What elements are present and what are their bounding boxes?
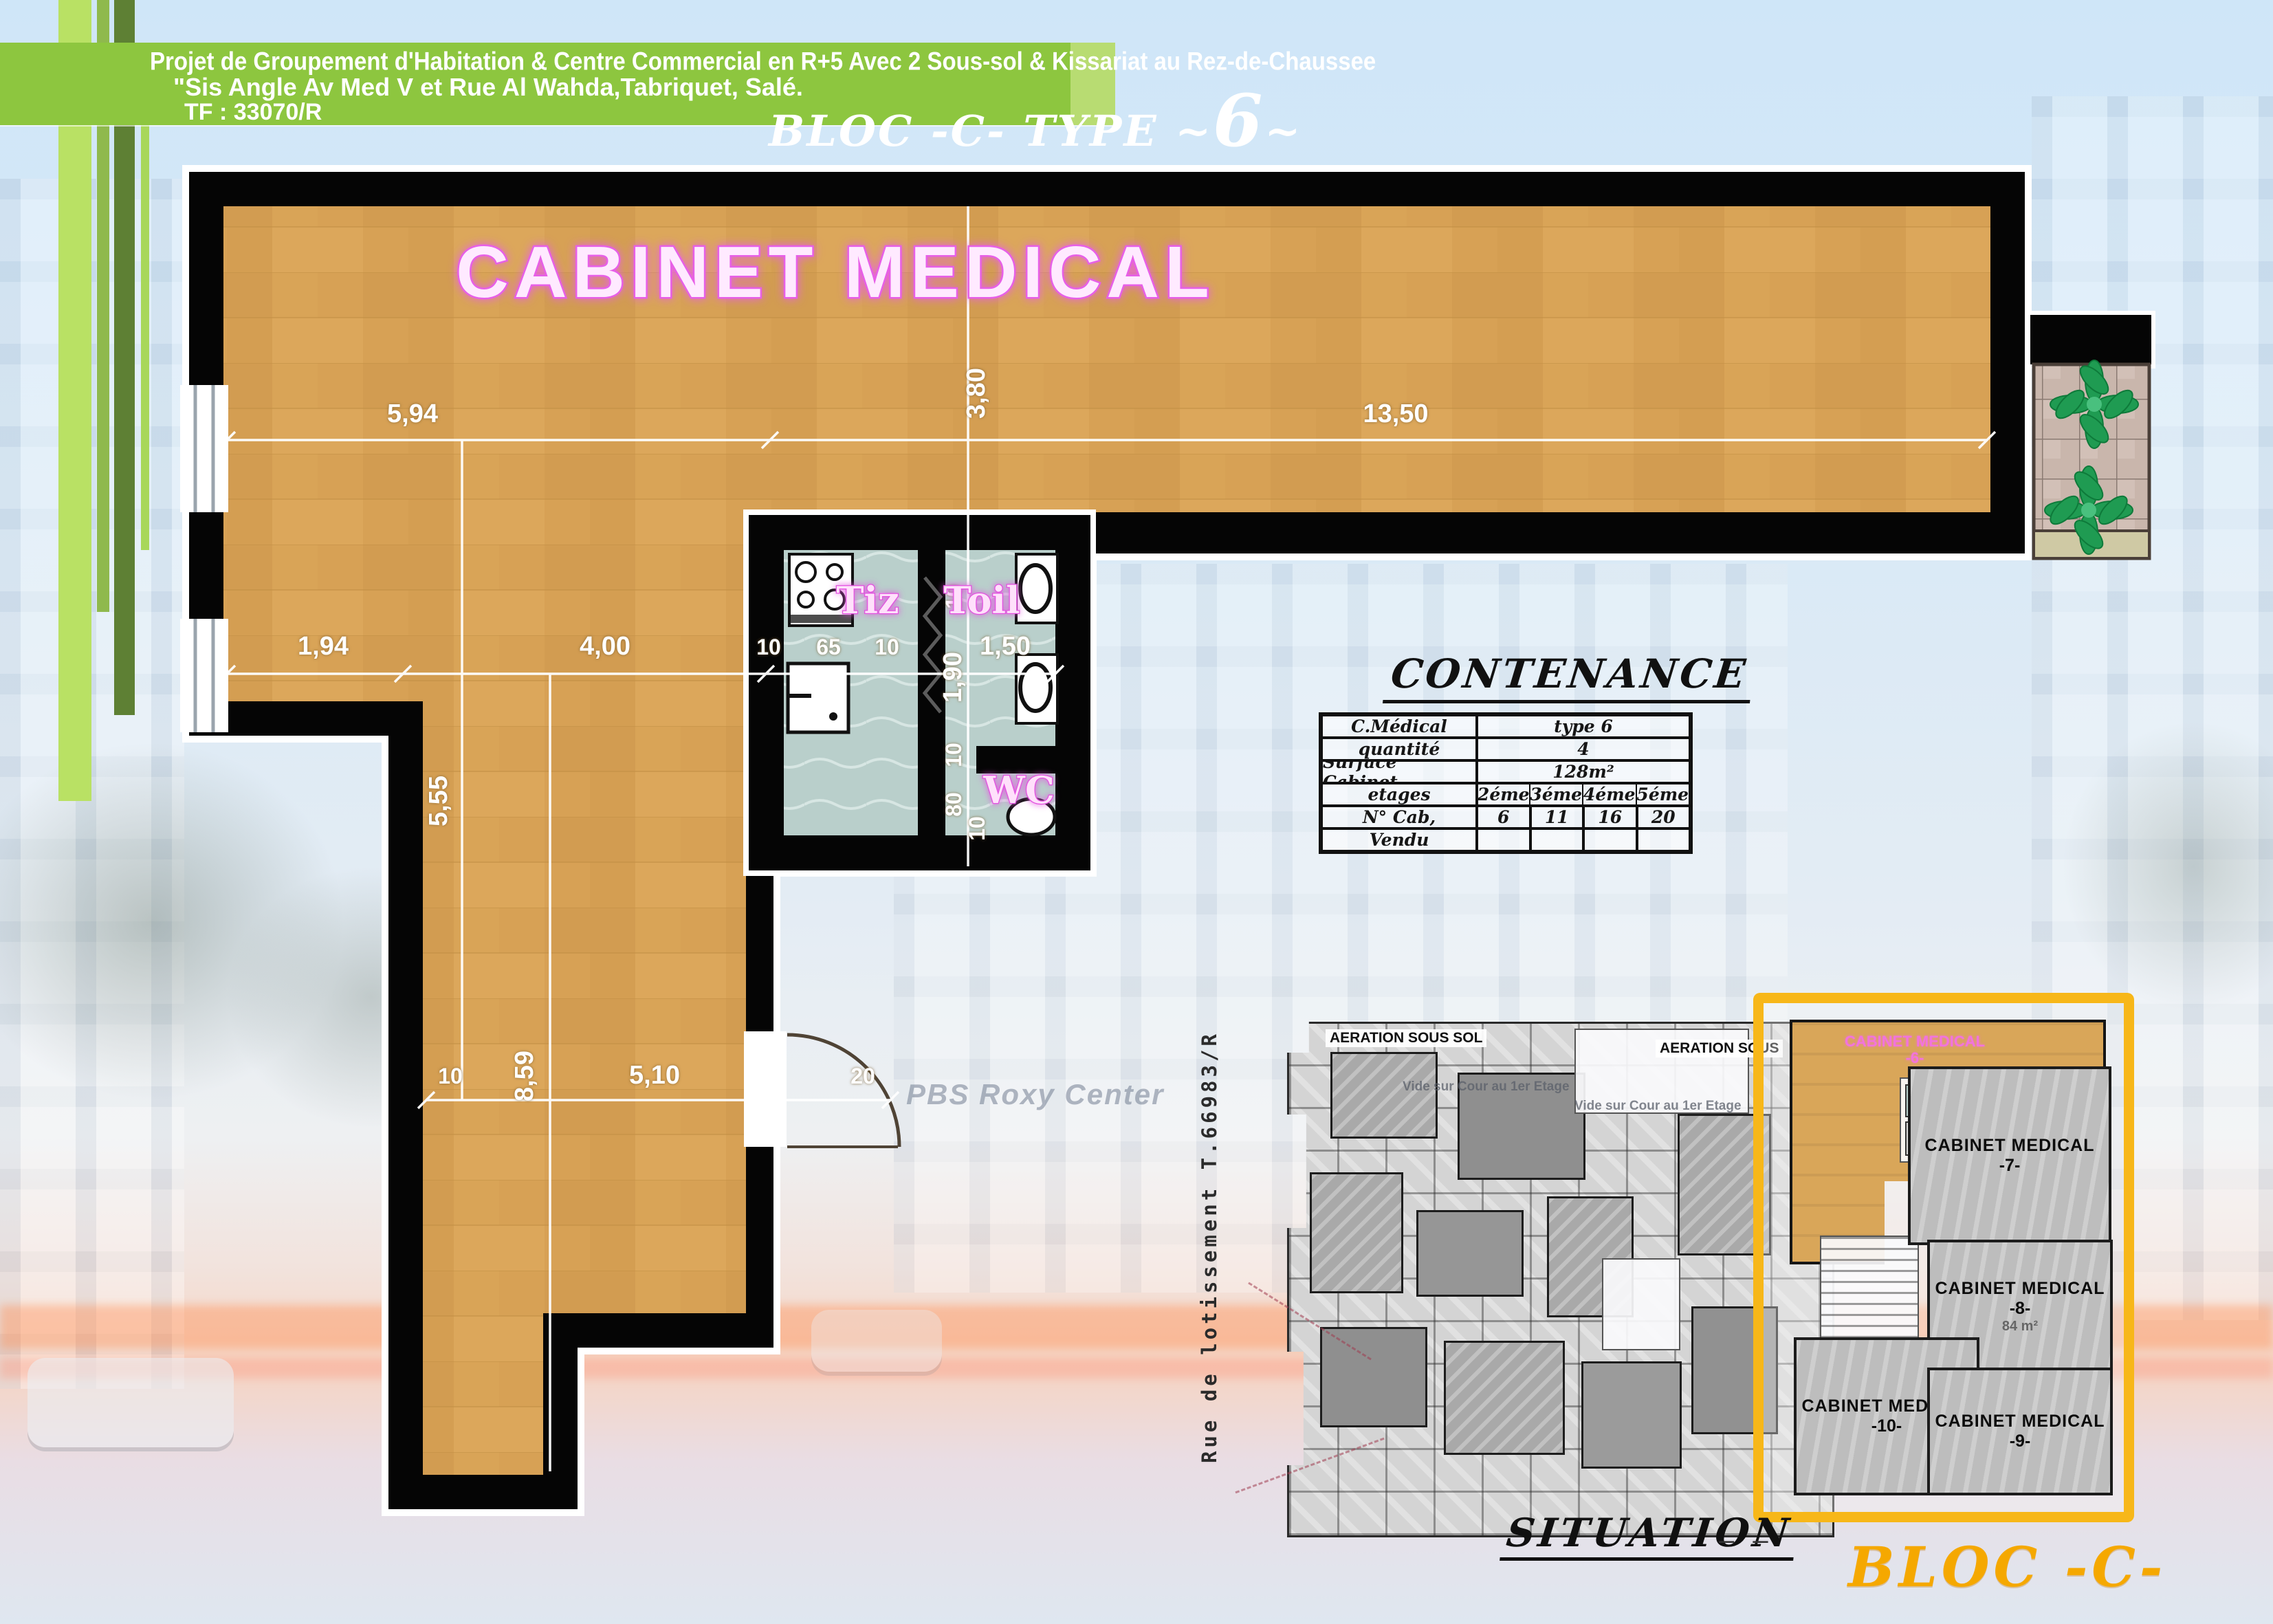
bloc-c-highlight-frame: CABINET MEDICAL -6- CABINET MEDICAL -7- … <box>1753 993 2134 1522</box>
table-cell: quantité <box>1321 738 1477 760</box>
situation-title-dashes: – – <box>1719 1525 1774 1556</box>
photo-watermark: PBS Roxy Center <box>906 1078 1164 1111</box>
unit-number: -7- <box>1999 1156 2021 1176</box>
table-cell: 4 <box>1477 738 1690 760</box>
dim-label: 4,00 <box>580 632 630 661</box>
unit-name: CABINET MEDICAL <box>1845 1033 1985 1050</box>
dim-label: 5,10 <box>629 1061 680 1090</box>
table-cell: Surface Cabinet <box>1321 760 1477 783</box>
situation-unit-6-label: CABINET MEDICAL -6- <box>1845 1033 1985 1066</box>
plan-title: CABINET MEDICAL <box>456 232 1214 313</box>
window-opening <box>180 619 228 732</box>
table-cell: Vendu <box>1321 829 1477 851</box>
unit-number: -9- <box>2010 1431 2031 1451</box>
apartment-room <box>1330 1052 1438 1139</box>
balcony-wall <box>2028 313 2153 366</box>
vide-label: Vide sur Cour au 1er Etage <box>1574 1099 1742 1114</box>
table-cell <box>1637 829 1691 851</box>
table-cell <box>1583 829 1637 851</box>
entrance-door <box>744 1031 899 1147</box>
unit-name: CABINET MEDICAL <box>1925 1136 2095 1156</box>
dim-label: 8,59 <box>510 1051 539 1101</box>
table-cell: 5éme <box>1637 783 1691 806</box>
table-cell <box>1530 829 1584 851</box>
dim-label: 1,90 <box>938 652 967 703</box>
mini-stairwell <box>1820 1236 1919 1341</box>
dim-label: 10 <box>875 635 899 659</box>
situation-unit-7: CABINET MEDICAL -7- <box>1908 1066 2111 1245</box>
table-cell: type 6 <box>1477 715 1690 738</box>
table-cell: etages <box>1321 783 1477 806</box>
dim-label: 10 <box>438 1064 463 1088</box>
room-label-tiz: Tiz <box>836 578 899 622</box>
dim-label: 10 <box>941 743 966 767</box>
table-cell: 16 <box>1583 806 1637 829</box>
vide-label: Vide sur Cour au 1er Etage <box>1403 1079 1570 1095</box>
apartment-stairwell <box>1602 1258 1680 1350</box>
apartment-room <box>1310 1172 1403 1293</box>
table-cell: 128m² <box>1477 760 1690 783</box>
unit-number: -10- <box>1871 1416 1902 1436</box>
dim-label: 80 <box>941 792 966 817</box>
room-label-wc: WC <box>982 768 1055 812</box>
unit-area: 84 m² <box>2002 1319 2038 1335</box>
apartment-room <box>1320 1327 1427 1427</box>
toilet-icon <box>1016 554 1057 623</box>
unit-number: -6- <box>1845 1050 1985 1066</box>
table-cell: N° Cab, <box>1321 806 1477 829</box>
apartment-room <box>1444 1341 1565 1455</box>
toilet-icon <box>1016 655 1057 723</box>
unit-name: CABINET MEDICAL <box>1935 1279 2105 1299</box>
room-label-toil: Toil <box>943 578 1020 622</box>
contenance-table: C.Médical type 6 quantité 4 Surface Cabi… <box>1319 712 1693 854</box>
dim-label: 10 <box>965 816 989 841</box>
table-cell: 6 <box>1477 806 1530 829</box>
unit-name: CABINET MEDICAL <box>1935 1412 2105 1431</box>
table-cell: 2éme <box>1477 783 1530 806</box>
dim-label: 10 <box>756 635 781 659</box>
aeration-label: AERATION SOUS SOL <box>1326 1029 1486 1047</box>
situation-unit-9: CABINET MEDICAL -9- <box>1927 1368 2113 1495</box>
dim-label: 1,94 <box>298 632 349 661</box>
table-cell: 3éme <box>1530 783 1584 806</box>
table-cell: 4éme <box>1583 783 1637 806</box>
wet-rooms-block <box>746 512 1093 873</box>
table-cell: 11 <box>1530 806 1584 829</box>
table-cell <box>1477 829 1530 851</box>
dim-label: 13,50 <box>1363 399 1428 428</box>
dim-label: 3,80 <box>962 368 991 419</box>
dim-label: 5,55 <box>424 776 453 826</box>
poster-canvas: Projet de Groupement d'Habitation & Cent… <box>0 0 2273 1624</box>
table-cell: 20 <box>1637 806 1691 829</box>
dim-label: 65 <box>816 635 841 659</box>
bloc-c-label: BLOC -C- <box>1848 1535 2166 1599</box>
unit-number: -8- <box>2010 1299 2031 1319</box>
contenance-title: CONTENANCE <box>1383 650 1756 703</box>
dim-label: 5,94 <box>387 399 438 428</box>
table-cell: C.Médical <box>1321 715 1477 738</box>
apartment-room <box>1416 1210 1524 1297</box>
dim-label: 1,50 <box>980 632 1031 661</box>
window-opening <box>180 385 228 512</box>
street-label: Rue de lotissement T.66983/R <box>1198 1064 1221 1463</box>
apartment-room <box>1581 1361 1682 1469</box>
dim-label: 20 <box>850 1064 875 1088</box>
